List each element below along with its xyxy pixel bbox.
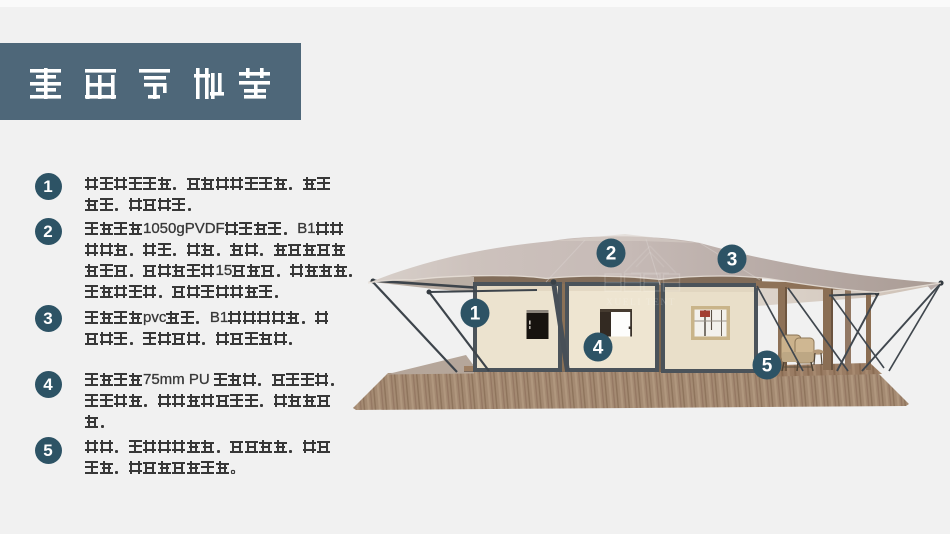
svg-text:3: 3 [727,250,738,271]
svg-text:1: 1 [470,304,481,325]
svg-text:4: 4 [593,338,604,359]
svg-text:XUELI TENT: XUELI TENT [606,298,676,308]
svg-text:5: 5 [762,356,773,377]
svg-text:2: 2 [606,244,617,265]
